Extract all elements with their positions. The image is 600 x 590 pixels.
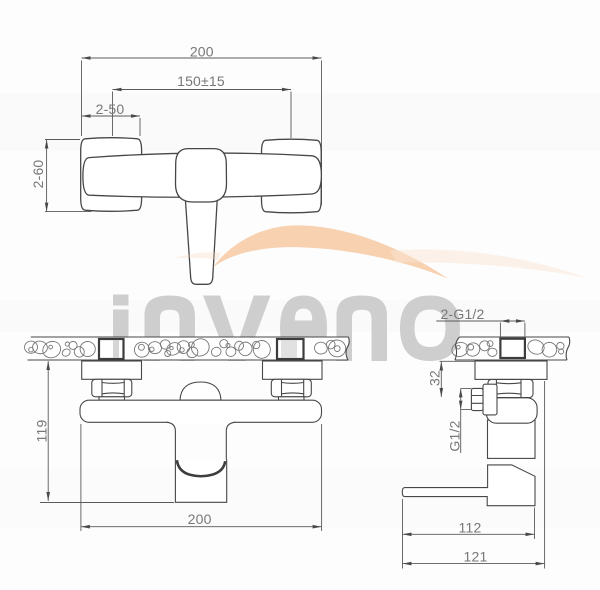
svg-text:150±15: 150±15 [177, 73, 225, 89]
svg-text:2-60: 2-60 [30, 160, 46, 189]
svg-text:2-50: 2-50 [96, 101, 125, 117]
svg-text:32: 32 [427, 370, 443, 386]
svg-text:119: 119 [34, 420, 50, 443]
svg-text:112: 112 [459, 520, 482, 536]
svg-text:200: 200 [190, 44, 214, 60]
svg-text:121: 121 [464, 549, 488, 565]
svg-text:200: 200 [188, 511, 212, 527]
svg-text:2-G1/2: 2-G1/2 [441, 306, 485, 322]
svg-text:G1/2: G1/2 [446, 420, 462, 451]
